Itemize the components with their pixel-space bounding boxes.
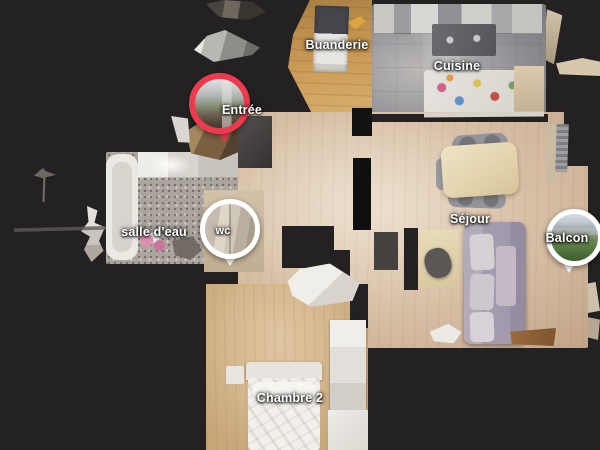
door-frame: [353, 158, 371, 230]
wall: [404, 228, 418, 290]
room-label-sejour: Séjour: [450, 212, 490, 226]
room-label-cuisine: Cuisine: [434, 59, 481, 73]
dollhouse-floorplan-view[interactable]: Buanderie Cuisine Entrée salle d'eau wc …: [0, 0, 600, 450]
pin-balcon[interactable]: [546, 209, 600, 287]
wall-fragment: [546, 124, 555, 182]
white-desk: [328, 410, 368, 450]
room-label-salle-deau: salle d'eau: [121, 225, 187, 239]
room-label-wc: wc: [215, 225, 230, 237]
room-label-chambre-2: Chambre 2: [257, 391, 323, 405]
sofa-blanket: [496, 246, 516, 306]
kitchen-stove: [432, 24, 496, 56]
light-reflection: [148, 154, 192, 176]
scan-fragment: [194, 30, 260, 62]
sofa-cushion: [469, 274, 494, 311]
scan-fragment: [206, 0, 266, 20]
tv-cabinet: [374, 232, 398, 270]
scan-fragment: [34, 168, 56, 202]
door-frame: [352, 108, 372, 136]
pin-wc[interactable]: [200, 199, 260, 277]
sofa-cushion: [469, 312, 494, 343]
radiator: [555, 124, 569, 172]
room-label-balcon: Balcon: [546, 231, 589, 245]
scan-fragment: [78, 206, 108, 262]
dining-table: [440, 141, 519, 198]
room-label-buanderie: Buanderie: [306, 38, 369, 52]
room-label-entree: Entrée: [222, 103, 262, 117]
scan-fragment: [556, 58, 600, 76]
wall: [282, 226, 334, 268]
kitchen-cabinet: [514, 66, 544, 114]
wall-sill: [424, 111, 544, 117]
sofa-cushion: [469, 233, 495, 270]
scan-fragment: [14, 226, 106, 232]
nightstand: [226, 366, 244, 384]
wardrobe: [330, 320, 366, 410]
